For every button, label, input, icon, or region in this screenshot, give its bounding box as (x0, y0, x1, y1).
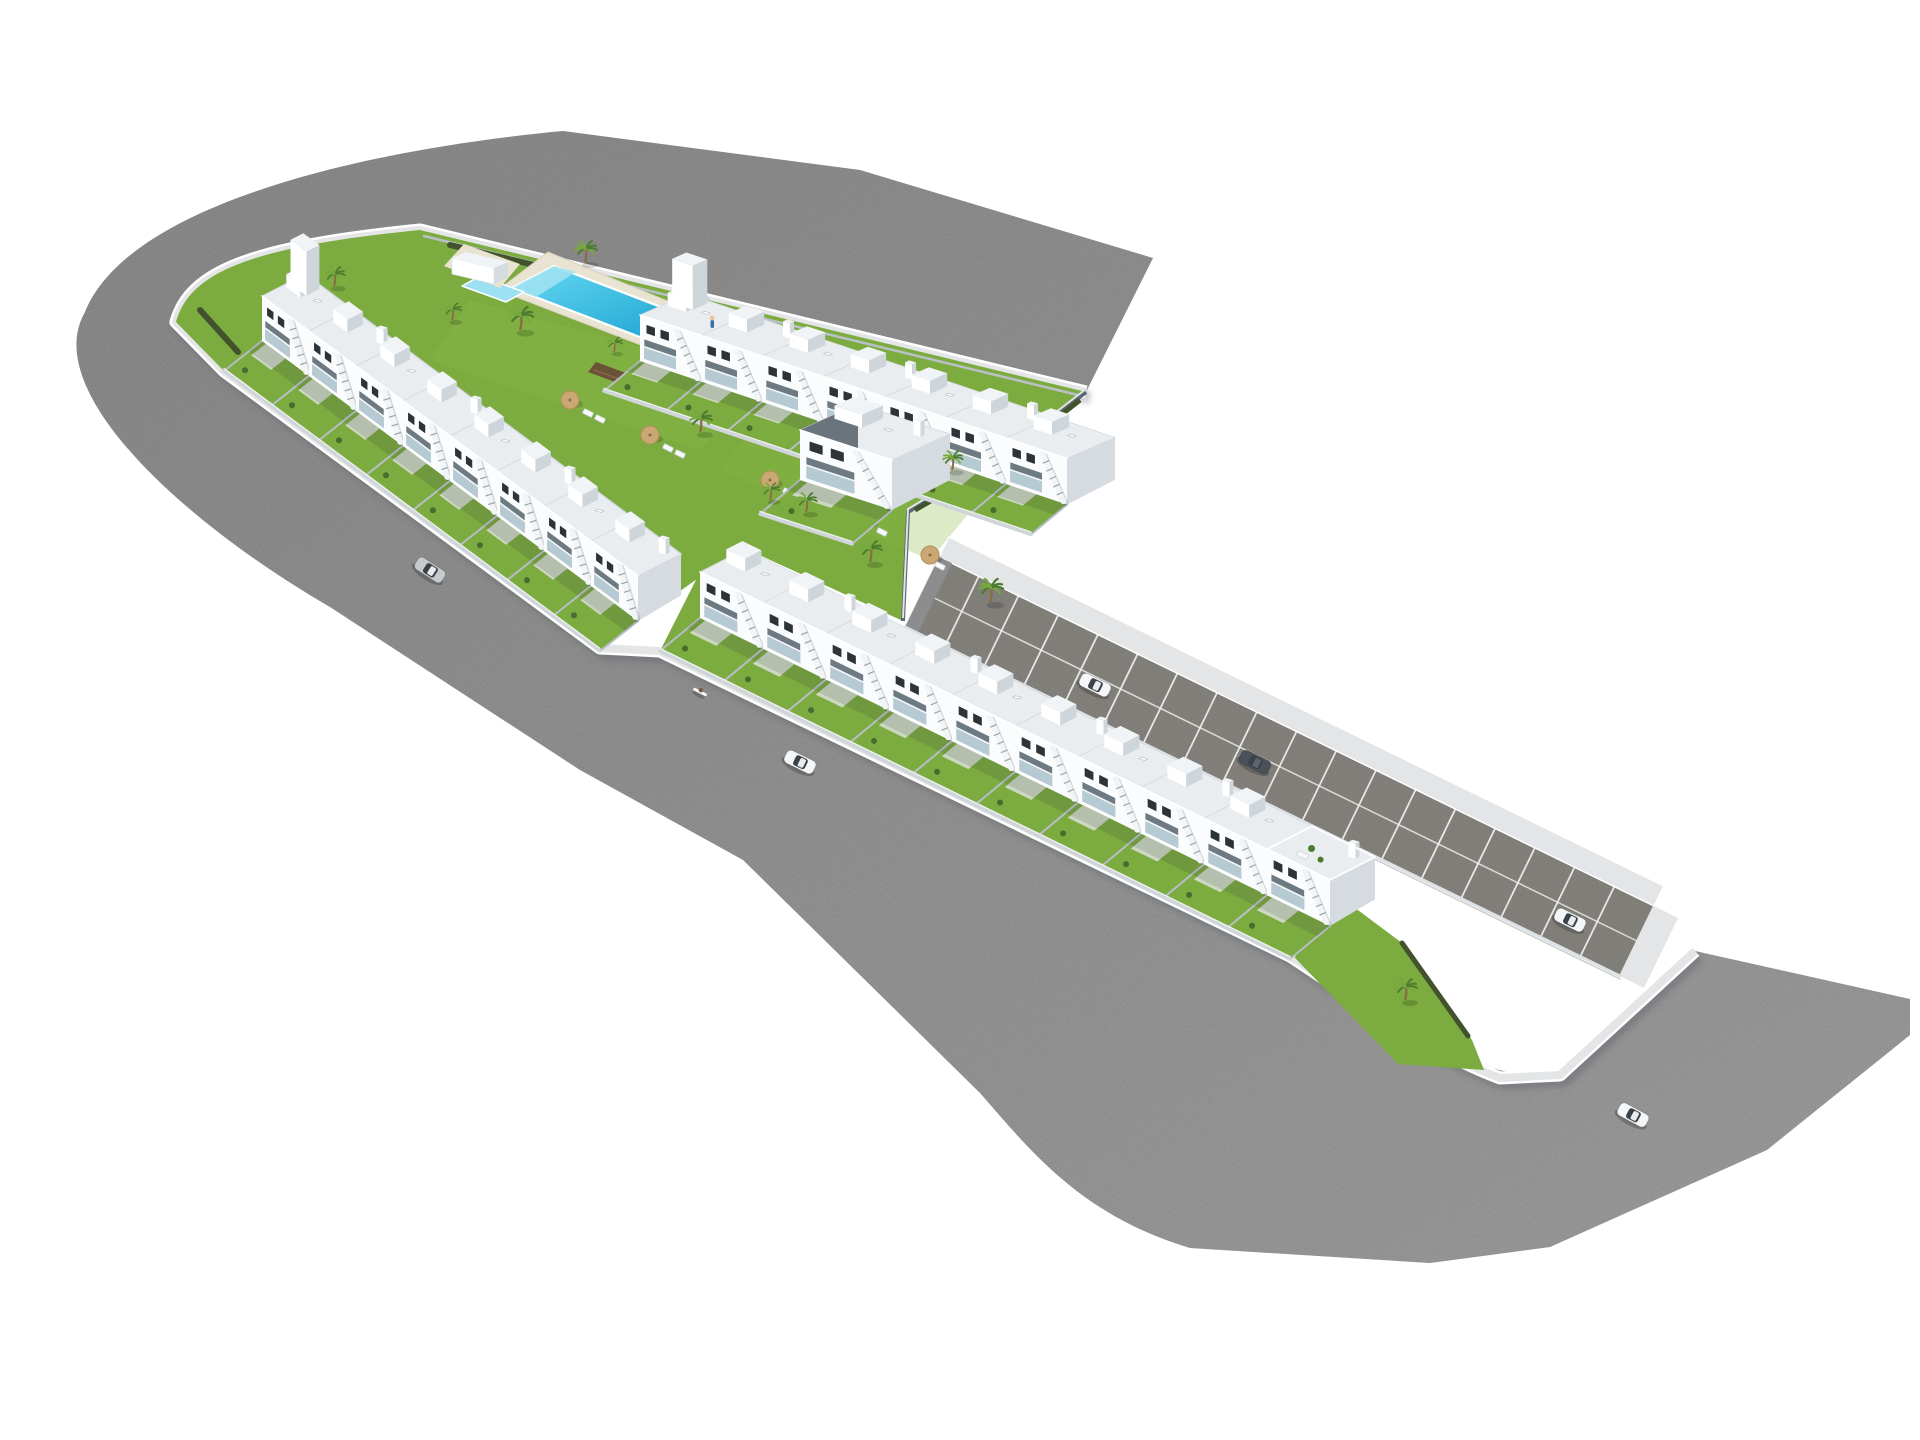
scene-canvas (0, 0, 1920, 1440)
box-front (914, 420, 921, 437)
garden-bush (808, 707, 814, 713)
tree-shadow (803, 512, 817, 517)
palm-trunk (870, 549, 871, 562)
box-side (921, 420, 925, 437)
umbrella-pole (649, 434, 652, 437)
box-front (471, 398, 478, 415)
palm-trunk (770, 490, 771, 500)
box-front (659, 538, 666, 555)
person-head (710, 316, 715, 321)
umbrella-pole (769, 479, 772, 482)
box-side (1356, 842, 1360, 859)
palm-trunk (585, 249, 586, 262)
umbrella-pole (929, 554, 932, 557)
tree-shadow (987, 602, 1005, 609)
garden-bush (1123, 861, 1129, 867)
tree-shadow (517, 330, 535, 337)
garden-bush (991, 507, 997, 513)
box-front (905, 362, 912, 379)
garden-bush (383, 472, 389, 478)
roof-plant (1318, 857, 1324, 863)
garden-bush (477, 542, 483, 548)
garden-bush (745, 676, 751, 682)
box-front (1027, 403, 1034, 420)
box-side (666, 538, 670, 555)
palm-trunk (520, 316, 521, 330)
box-front (1097, 719, 1104, 736)
palm-trunk (334, 274, 335, 286)
tree-shadow (1402, 1000, 1418, 1006)
box-front (377, 328, 384, 345)
box-side (307, 245, 320, 296)
roof-plant (1308, 845, 1315, 852)
palm-trunk (806, 500, 807, 512)
tree-shadow (612, 352, 623, 356)
palm-trunk (614, 343, 615, 352)
garden-bush (336, 437, 342, 443)
box-front (971, 657, 978, 674)
box-front (1223, 780, 1230, 797)
umbrella-pole (569, 399, 572, 402)
tree-shadow (331, 286, 345, 291)
box-side (693, 260, 707, 310)
person-body (711, 320, 715, 328)
garden-bush (1060, 830, 1066, 836)
box-front (672, 259, 693, 310)
garden-bush (242, 367, 248, 373)
garden-bush (1186, 892, 1192, 898)
garden-bush (788, 508, 794, 514)
palm-trunk (1405, 987, 1406, 1000)
tree-shadow (697, 432, 713, 438)
tree-shadow (768, 500, 781, 505)
tree-shadow (949, 470, 963, 475)
palm-trunk (952, 458, 953, 470)
garden-bush (571, 612, 577, 618)
garden-bush (934, 769, 940, 775)
garden-bush (682, 646, 688, 652)
palm-trunk (700, 419, 701, 432)
garden-bush (747, 425, 753, 431)
tree-shadow (867, 562, 883, 568)
garden-bush (625, 384, 631, 390)
garden-bush (997, 800, 1003, 806)
garden-bush (871, 738, 877, 744)
garden-bush (289, 402, 295, 408)
garden-bush (524, 577, 530, 583)
garden-bush (430, 507, 436, 513)
aerial-development-render (0, 0, 1920, 1440)
box-front (845, 595, 852, 612)
palm-trunk (990, 588, 991, 602)
box-front (565, 468, 572, 485)
tree-shadow (582, 262, 598, 268)
tree-shadow (450, 320, 463, 325)
garden-bush (1249, 923, 1255, 929)
garden-bush (686, 405, 692, 411)
box-front (783, 321, 790, 338)
palm-trunk (452, 310, 453, 320)
